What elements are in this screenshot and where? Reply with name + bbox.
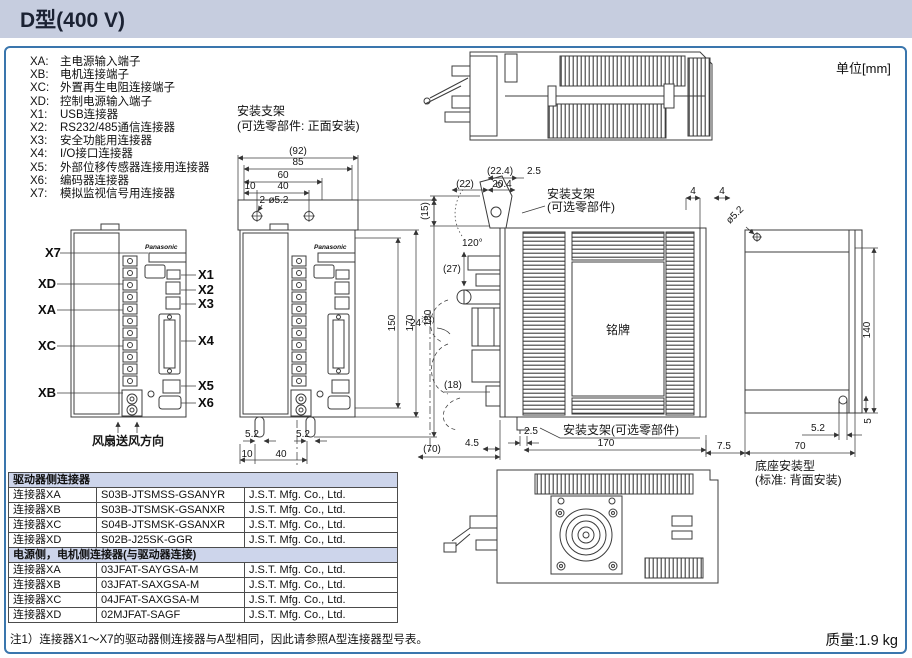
table-row: 连接器XDS02B-J25SK-GGRJ.S.T. Mfg. Co., Ltd.	[9, 533, 398, 548]
connector-table: 驱动器侧连接器 连接器XAS03B-JTSMSS-GSANYRJ.S.T. Mf…	[8, 472, 398, 623]
table-row: 连接器XCS04B-JTSMSK-GSANXRJ.S.T. Mfg. Co., …	[9, 518, 398, 533]
legend-item: XC:外置再生电阻连接端子	[30, 82, 210, 95]
legend-item: X7:模拟监视信号用连接器	[30, 188, 210, 201]
page-title-bar: D型(400 V)	[0, 0, 912, 38]
page-title: D型(400 V)	[20, 4, 125, 34]
table-row: 连接器XC04JFAT-SAXGSA-MJ.S.T. Mfg. Co., Ltd…	[9, 593, 398, 608]
table-row: 连接器XD02MJFAT-SAGFJ.S.T. Mfg. Co., Ltd.	[9, 608, 398, 623]
page: D型(400 V) Panasonic	[0, 0, 912, 658]
legend-item: X6:编码器连接器	[30, 175, 210, 188]
table-section-header: 驱动器侧连接器	[9, 473, 398, 488]
legend-item: X4:I/O接口连接器	[30, 148, 210, 161]
table-section-header: 电源侧，电机侧连接器(与驱动器连接)	[9, 548, 398, 563]
connector-legend: XA:主电源输入端子 XB:电机连接端子 XC:外置再生电阻连接端子 XD:控制…	[30, 56, 210, 201]
legend-item: X2:RS232/485通信连接器	[30, 122, 210, 135]
table-row: 连接器XBS03B-JTSMSK-GSANXRJ.S.T. Mfg. Co., …	[9, 503, 398, 518]
legend-item: X1:USB连接器	[30, 109, 210, 122]
legend-item: X5:外部位移传感器连接用连接器	[30, 162, 210, 175]
mass-label: 质量:1.9 kg	[825, 629, 898, 650]
table-row: 连接器XAS03B-JTSMSS-GSANYRJ.S.T. Mfg. Co., …	[9, 488, 398, 503]
legend-item: XA:主电源输入端子	[30, 56, 210, 69]
table-row: 连接器XB03JFAT-SAXGSA-MJ.S.T. Mfg. Co., Ltd…	[9, 578, 398, 593]
table-row: 连接器XA03JFAT-SAYGSA-MJ.S.T. Mfg. Co., Ltd…	[9, 563, 398, 578]
legend-item: X3:安全功能用连接器	[30, 135, 210, 148]
legend-item: XB:电机连接端子	[30, 69, 210, 82]
legend-item: XD:控制电源输入端子	[30, 96, 210, 109]
footnote: 注1）连接器X1～X7的驱动器侧连接器与A型相同，因此请参照A型连接器型号表。	[10, 631, 428, 647]
unit-label: 单位[mm]	[836, 58, 891, 77]
front-bracket-note: 安装支架 (可选零部件: 正面安装)	[237, 104, 360, 134]
